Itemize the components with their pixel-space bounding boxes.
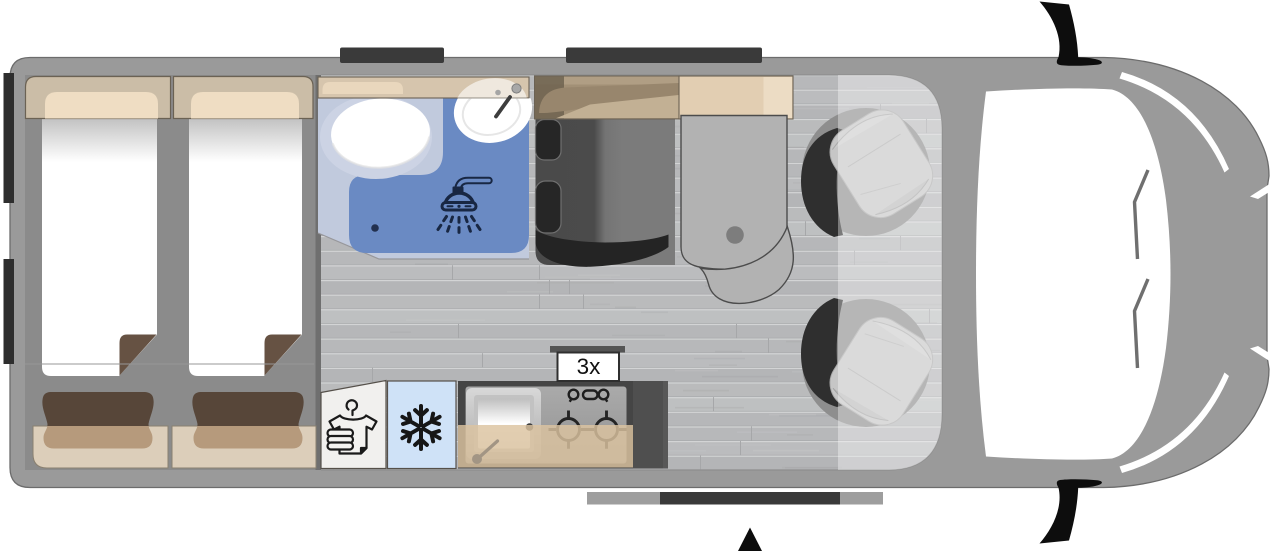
svg-text:3x: 3x xyxy=(577,354,602,379)
